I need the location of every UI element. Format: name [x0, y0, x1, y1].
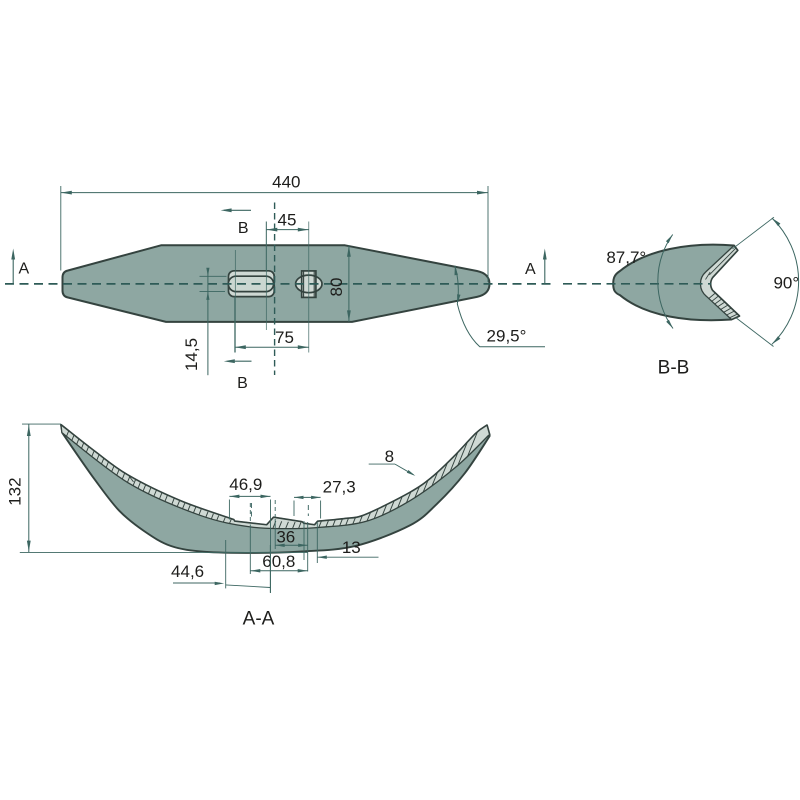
svg-text:60,8: 60,8 — [262, 552, 295, 571]
svg-text:B: B — [237, 375, 248, 392]
svg-text:90°: 90° — [773, 274, 799, 293]
svg-text:27,3: 27,3 — [323, 478, 356, 497]
svg-text:B: B — [238, 220, 249, 237]
svg-text:46,9: 46,9 — [229, 475, 262, 494]
svg-text:44,6: 44,6 — [171, 562, 204, 581]
svg-text:A-A: A-A — [243, 609, 275, 630]
svg-text:14,5: 14,5 — [182, 338, 201, 371]
svg-text:45: 45 — [278, 211, 297, 230]
svg-text:29,5°: 29,5° — [487, 326, 527, 345]
svg-text:87,7°: 87,7° — [606, 248, 646, 267]
svg-text:75: 75 — [275, 328, 294, 347]
svg-text:B-B: B-B — [658, 358, 690, 379]
svg-text:8: 8 — [385, 447, 394, 466]
svg-text:A: A — [18, 260, 29, 277]
svg-text:36: 36 — [276, 527, 295, 546]
svg-text:80: 80 — [327, 278, 346, 297]
svg-text:132: 132 — [5, 477, 24, 505]
svg-text:440: 440 — [272, 173, 300, 192]
svg-text:13: 13 — [342, 538, 361, 557]
svg-text:A: A — [525, 261, 536, 278]
